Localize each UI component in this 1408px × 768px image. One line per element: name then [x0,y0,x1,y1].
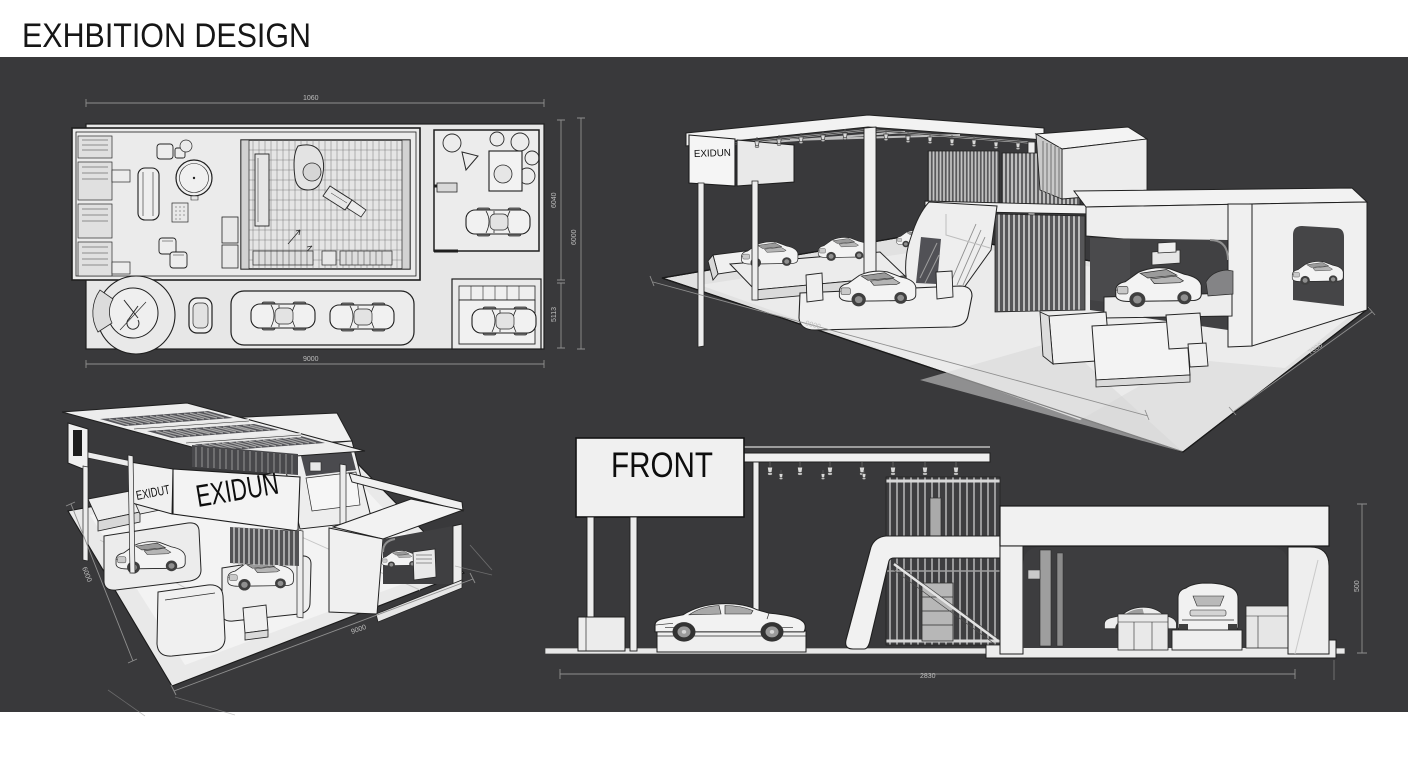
svg-text:6000: 6000 [571,229,578,245]
svg-text:EXIDUN: EXIDUN [694,148,731,160]
svg-text:500: 500 [1354,580,1361,592]
svg-text:6040: 6040 [551,192,558,208]
svg-text:5113: 5113 [551,307,558,322]
svg-text:9000: 9000 [303,356,319,363]
svg-text:FRONT: FRONT [611,446,713,485]
svg-text:1060: 1060 [303,95,319,102]
svg-text:2830: 2830 [920,673,936,680]
svg-text:EXHBITION DESIGN: EXHBITION DESIGN [22,17,311,55]
